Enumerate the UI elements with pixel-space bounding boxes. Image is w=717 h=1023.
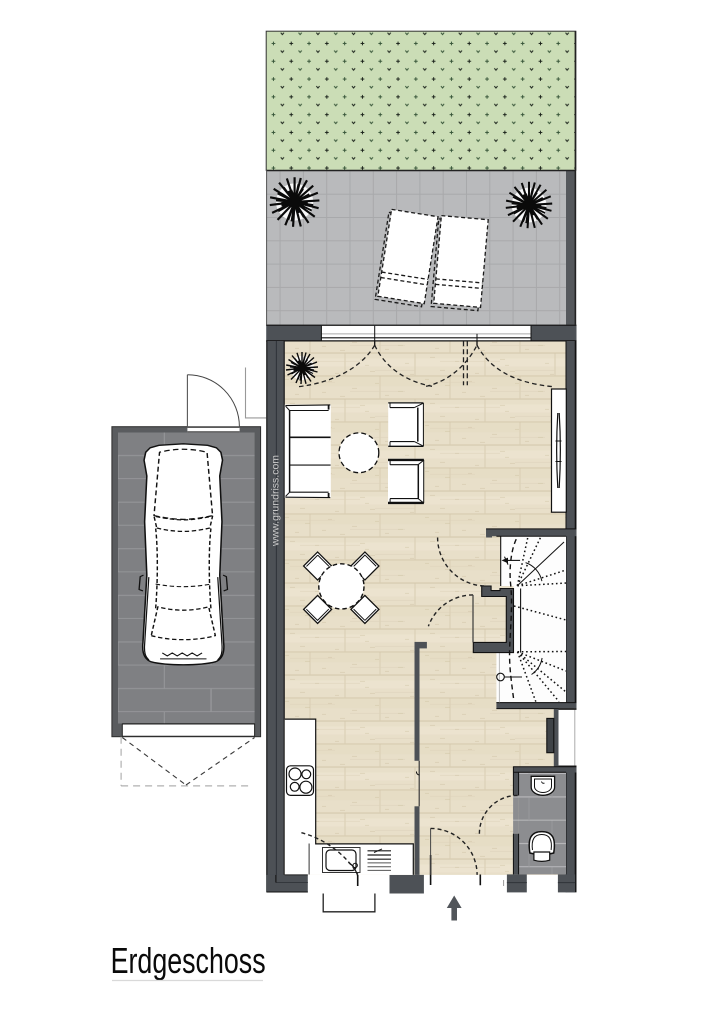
svg-text:Erdgeschoss: Erdgeschoss [111, 940, 266, 981]
svg-text:www.grundriss.com: www.grundriss.com [270, 455, 282, 547]
